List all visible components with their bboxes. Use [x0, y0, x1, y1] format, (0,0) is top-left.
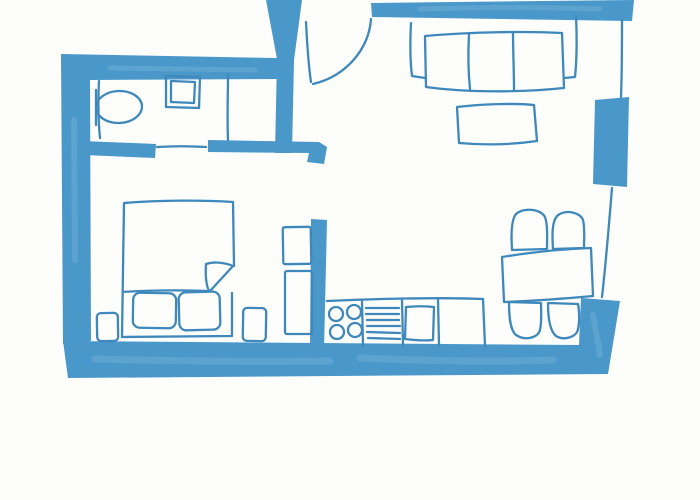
counter-divider-1: [362, 301, 363, 346]
floor-plan-canvas: [0, 0, 700, 500]
bathroom-door-line: [157, 146, 206, 147]
counter-divider-2: [402, 300, 403, 345]
radiator-pier: [593, 97, 629, 187]
counter-divider-3: [438, 299, 439, 345]
screenshot-root: [0, 0, 700, 500]
sofa-cushion-divider-right: [513, 32, 514, 90]
window-wall-line-upper: [621, 20, 622, 97]
